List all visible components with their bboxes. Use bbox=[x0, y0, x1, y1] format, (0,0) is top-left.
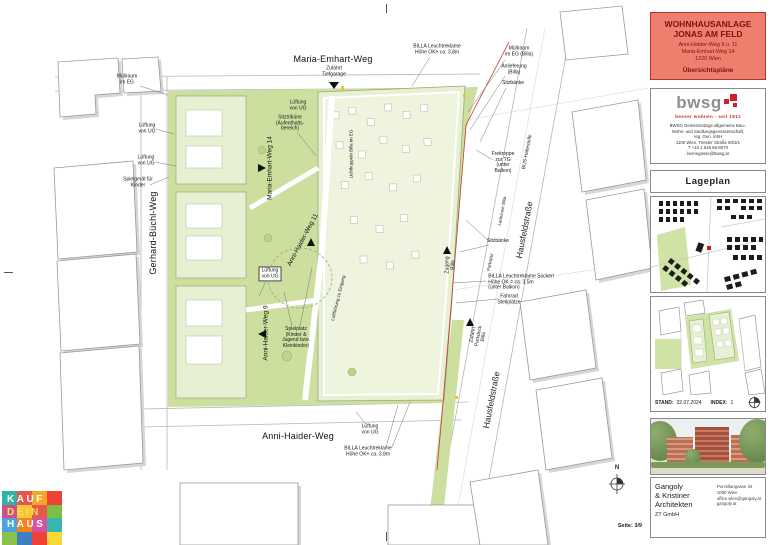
bwsg-logo-squares-icon bbox=[724, 94, 740, 109]
bwsg-tagline: besser wohnen - seit 1911 bbox=[651, 114, 765, 119]
mini-site-plan-graphic bbox=[651, 297, 765, 395]
project-title-block: WOHNHAUSANLAGE JONAS AM FELD Anni-Haider… bbox=[650, 12, 766, 80]
kdh-line-3: HAUS bbox=[7, 519, 62, 532]
bwsg-panel: bwsg besser wohnen - seit 1911 BWSG Geme… bbox=[650, 88, 766, 164]
bwsg-address-line: bernegasse@bwsg.at bbox=[651, 151, 765, 157]
stand-value: 22.07.2024 bbox=[677, 400, 702, 406]
annotation-anlieferung-billa: Anlieferung (Billa) bbox=[501, 64, 526, 75]
building-label-anni-haider-weg-9: Anni-Haider-Weg 9 bbox=[262, 305, 269, 360]
annotation-lueftung-e: Lüftung von UG bbox=[362, 424, 379, 435]
stand-label: STAND: bbox=[655, 400, 674, 406]
lageplan-header: Lageplan bbox=[650, 170, 766, 193]
index-value: 1 bbox=[731, 400, 734, 406]
project-title-line1: WOHNHAUSANLAGE bbox=[651, 19, 765, 29]
annotation-spielplatz: Spielplatz (Kinder & Jugend bzw. Kleinki… bbox=[282, 327, 310, 349]
architect-name-3: Architekten bbox=[655, 501, 713, 510]
street-label-anni-haider-weg: Anni-Haider-Weg bbox=[262, 431, 334, 441]
rendering-scene bbox=[651, 419, 765, 474]
project-address-3: 1220 Wien bbox=[651, 56, 765, 63]
architect-suffix: ZT GmbH bbox=[655, 512, 713, 518]
annotation-spielgeraet: Spielgerät für Kinder bbox=[123, 177, 153, 188]
kdh-line-2: DEIN bbox=[7, 507, 62, 520]
project-address-2: Maria-Emhart-Weg 14 bbox=[651, 49, 765, 56]
annotation-sitzbaenke-1: Sitzbänke bbox=[502, 81, 524, 87]
annotation-zufahrt-tiefgarage: Zufahrt Tiefgarage bbox=[322, 66, 346, 77]
kdh-line-1: KAUF bbox=[7, 494, 62, 507]
architect-contact: Porzellangasse 34 1090 Wien office.wien@… bbox=[717, 483, 761, 532]
annotation-lueftung-c: Lüftung von UG bbox=[290, 100, 307, 111]
city-map-graphic bbox=[651, 197, 765, 292]
north-label: N bbox=[615, 465, 619, 471]
architect-contact-line: gangoly.at bbox=[717, 501, 761, 507]
city-map-thumbnail bbox=[650, 196, 766, 293]
kauf-dein-haus-logo: KAUF DEIN HAUS bbox=[2, 491, 62, 545]
annotation-billa-reklame-top: BILLA Leuchtreklame Höhe OK+ ca. 3,8m bbox=[413, 44, 461, 55]
bwsg-logo-text: bwsg bbox=[676, 94, 721, 111]
building-label-maria-emhart-weg-14: Maria-Emhart-Weg 14 bbox=[266, 136, 273, 200]
building-rendering-thumbnail bbox=[650, 418, 766, 475]
north-arrow-icon bbox=[609, 474, 625, 494]
annotation-billa-sockerl: BILLA Leuchtreklame Sockerl Höhe OK = ca… bbox=[488, 275, 554, 292]
street-label-gerhard-buechl-weg: Gerhard-Büchl-Weg bbox=[148, 191, 158, 274]
annotation-lueftung-b: Lüftung von UG bbox=[138, 155, 155, 166]
annotation-lueftung-d: Lüftung von UG bbox=[259, 266, 282, 281]
map-site-marker bbox=[707, 246, 711, 250]
bwsg-logo: bwsg bbox=[676, 94, 739, 111]
annotation-muellraum-eg: Müllraum im EG bbox=[117, 74, 138, 85]
index-label: INDEX: bbox=[711, 400, 728, 406]
annotation-fahrrad-stellplaetze: Fahrrad Stellplätze bbox=[497, 294, 520, 305]
sheet-type-label: Übersichtspläne bbox=[651, 67, 765, 74]
street-label-maria-emhart-weg: Maria-Emhart-Weg bbox=[293, 54, 372, 64]
annotation-zugang-billa: Zugang Billa bbox=[445, 257, 456, 274]
annotation-lueftung-a: Lüftung von UG bbox=[139, 123, 156, 134]
drawing-sheet: Maria-Emhart-Weg Gerhard-Büchl-Weg Anni-… bbox=[0, 0, 770, 545]
project-title-line2: JONAS AM FELD bbox=[651, 29, 765, 39]
annotation-sitztribuene: Sitztribüne (Aufenthalts- bereich) bbox=[276, 116, 304, 133]
project-address-1: Anni-Haider-Weg 9 u. 11 bbox=[651, 42, 765, 49]
page-number: Seite: 3/9 bbox=[618, 523, 642, 529]
annotation-lichtkuppeln: Lichtkuppeln Billa im EG bbox=[348, 130, 353, 179]
bwsg-address: BWSG Gemeinnützige allgemeine Bau-, Wohn… bbox=[651, 123, 765, 156]
annotation-muellraum-billa: Müllraum im EG (Billa) bbox=[505, 46, 533, 57]
mini-site-plan-thumbnail: STAND: 22.07.2024 INDEX: 1 bbox=[650, 296, 766, 412]
compass-icon bbox=[748, 396, 761, 409]
lageplan-title: Lageplan bbox=[686, 176, 731, 187]
stand-index-row: STAND: 22.07.2024 INDEX: 1 bbox=[651, 396, 765, 409]
architect-block: Gangoly & Kristiner Architekten ZT GmbH … bbox=[650, 477, 766, 538]
annotation-sitzbaenke-2: Sitzbänke bbox=[487, 239, 509, 245]
annotation-freitreppe: Freitreppe zur TG (unter Balkon) bbox=[492, 152, 515, 174]
annotation-billa-reklame-bottom: BILLA Leuchtreklame Höhe OK+ ca. 3,8m bbox=[344, 446, 392, 457]
